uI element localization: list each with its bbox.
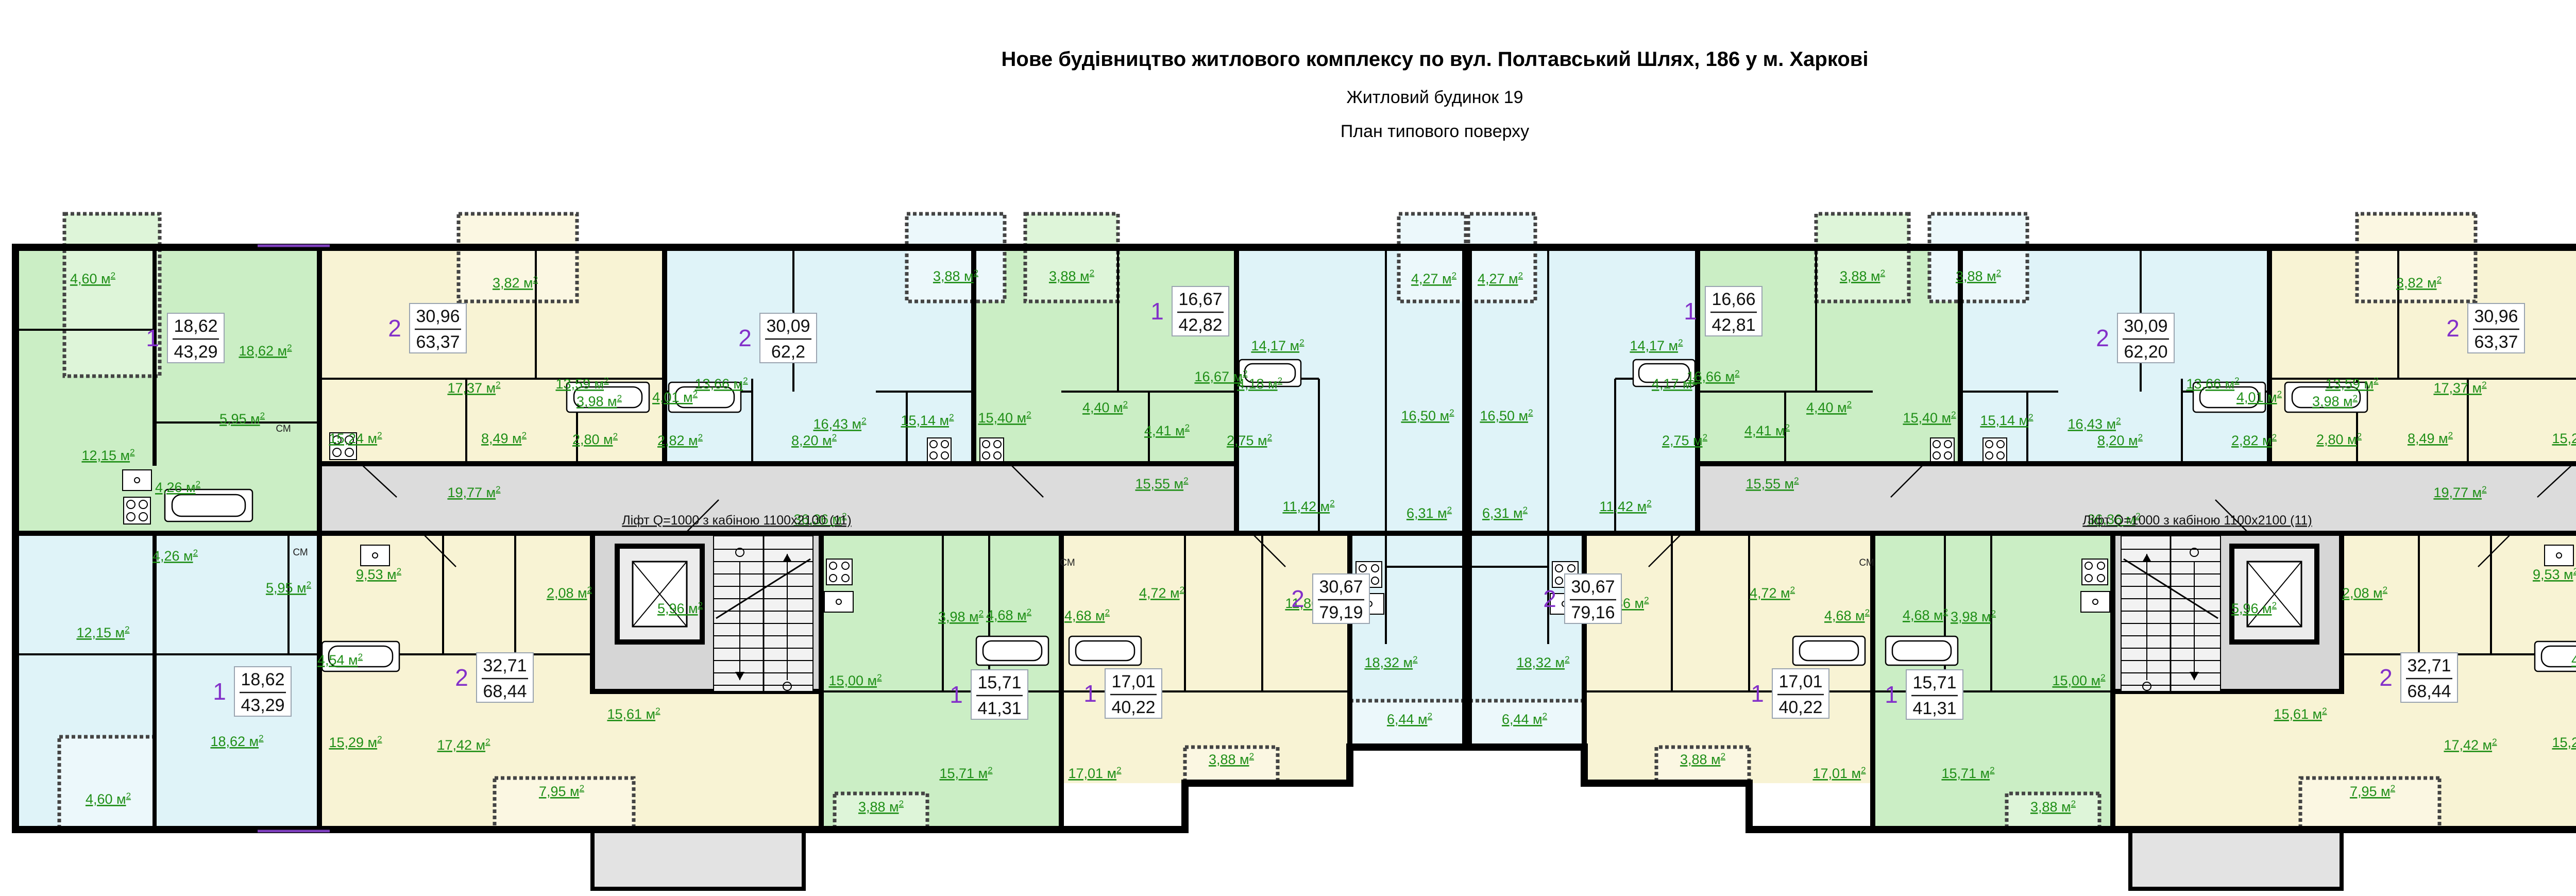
apartment-living-area: 32,71 xyxy=(2407,656,2451,675)
room-area-label: 15,40 м2 xyxy=(978,410,1031,426)
room-area-label: 19,77 м2 xyxy=(2433,484,2486,500)
apartment-living-area: 30,09 xyxy=(766,316,810,336)
apartment-number: 2 xyxy=(1543,585,1556,612)
apartment-total-area: 62,20 xyxy=(2124,342,2167,362)
apartment-number: 2 xyxy=(455,664,468,691)
room-area-label: 3,88 м2 xyxy=(933,268,978,284)
room-area-label: 4,41 м2 xyxy=(1144,422,1190,438)
apartment-total-area: 68,44 xyxy=(2407,682,2451,701)
room-area-label: 3,88 м2 xyxy=(858,799,904,815)
room-area-label: 3,88 м2 xyxy=(1049,268,1094,284)
closet-label: СМ xyxy=(1060,557,1075,568)
apartment-living-area: 30,67 xyxy=(1571,577,1615,597)
apartment-living-area: 30,96 xyxy=(2474,307,2518,326)
apartment-living-area: 32,71 xyxy=(483,656,527,675)
room-area-label: 4,72 м2 xyxy=(1139,585,1184,601)
room-area-label: 3,82 м2 xyxy=(493,275,538,291)
apartment-number: 2 xyxy=(1291,585,1304,612)
apartment-number: 1 xyxy=(1083,680,1097,707)
apartment-living-area: 18,62 xyxy=(241,670,284,689)
apartment-number: 1 xyxy=(213,678,226,705)
room-area-label: 5,96 м2 xyxy=(2231,600,2277,616)
room-area-label: 16,50 м2 xyxy=(1401,408,1454,424)
apartment-number: 2 xyxy=(388,315,401,342)
apartment-number: 1 xyxy=(146,325,159,351)
apartment-living-area: 16,67 xyxy=(1178,290,1222,309)
room-area-label: 2,08 м2 xyxy=(547,585,592,601)
room-area-label: 6,31 м2 xyxy=(1406,505,1452,521)
room-area-label: 7,95 м2 xyxy=(2350,783,2395,799)
room-area-label: 15,71 м2 xyxy=(1941,765,1994,781)
room-area-label: 15,00 м2 xyxy=(828,672,882,688)
room-area-label: 3,98 м2 xyxy=(577,393,622,409)
room-area-label: 2,80 м2 xyxy=(2316,431,2362,447)
apartment-living-area: 16,66 xyxy=(1711,290,1755,309)
room-area-label: 3,88 м2 xyxy=(1840,268,1885,284)
room-area-label: 4,68 м2 xyxy=(1064,607,1110,623)
apartment-total-area: 62,2 xyxy=(771,342,805,362)
apartment-total-area: 79,19 xyxy=(1319,603,1363,622)
room-area-label: 9,53 м2 xyxy=(2533,566,2576,582)
room-area-label: 17,37 м2 xyxy=(2433,380,2486,396)
apartment-living-area: 15,71 xyxy=(1912,673,1956,692)
room-area-label: 4,01 м2 xyxy=(2236,389,2282,405)
room-area-label: 3,88 м2 xyxy=(1956,268,2001,284)
room-area-label: 15,14 м2 xyxy=(1980,412,2033,428)
room-area-label: 12,15 м2 xyxy=(76,624,129,640)
apartment-total-area: 43,29 xyxy=(241,696,284,715)
room-area-label: 15,14 м2 xyxy=(901,412,954,428)
room-area-label: 2,75 м2 xyxy=(1227,432,1272,448)
room-area-label: 4,26 м2 xyxy=(152,548,198,564)
apartment-total-area: 40,22 xyxy=(1778,698,1822,717)
room-area-label: 4,54 м2 xyxy=(2571,652,2576,668)
room-area-label: 4,60 м2 xyxy=(70,271,115,286)
apartment-living-area: 17,01 xyxy=(1778,672,1822,691)
apartment-number: 1 xyxy=(1150,298,1164,325)
room-area-label: 4,41 м2 xyxy=(1744,422,1790,438)
room-area-label: 4,26 м2 xyxy=(155,479,200,495)
room-area-label: 15,29 м2 xyxy=(2552,734,2576,750)
room-area-label: 6,31 м2 xyxy=(1482,505,1528,521)
room-area-label: 15,61 м2 xyxy=(607,706,660,722)
room-area-label: 11,42 м2 xyxy=(1599,498,1651,514)
apartment-number: 1 xyxy=(950,681,963,708)
room-area-label: 15,61 м2 xyxy=(2274,706,2327,722)
apartment-number: 2 xyxy=(2096,325,2109,351)
apartment-total-area: 79,16 xyxy=(1571,603,1615,622)
room-area-label: 9,53 м2 xyxy=(356,566,401,582)
room-area-label: 4,60 м2 xyxy=(86,791,131,807)
apartment-number: 2 xyxy=(738,325,752,351)
apartment-number: 2 xyxy=(2446,315,2460,342)
room-area-label: 4,40 м2 xyxy=(1082,399,1128,415)
room-area-label: 4,18 м2 xyxy=(1237,376,1282,392)
closet-label: СМ xyxy=(276,424,291,434)
page-subtitle-building: Житловий будинок 19 xyxy=(1346,88,1523,107)
room-area-label: 11,42 м2 xyxy=(1282,498,1334,514)
room-area-label: 6,44 м2 xyxy=(1387,711,1432,727)
room-area-label: 2,08 м2 xyxy=(2342,585,2387,601)
room-area-label: 4,01 м2 xyxy=(652,389,698,405)
room-area-label: 4,72 м2 xyxy=(1750,585,1795,601)
apartment-total-area: 41,31 xyxy=(1912,699,1956,718)
room-area-label: 13,59 м2 xyxy=(2325,376,2378,392)
apartment-number: 2 xyxy=(2379,664,2393,691)
room-area-label: 15,40 м2 xyxy=(1903,410,1956,426)
room-area-label: 18,32 м2 xyxy=(1364,654,1417,670)
room-area-label: 17,42 м2 xyxy=(2444,737,2497,753)
room-area-label: 5,95 м2 xyxy=(266,580,311,596)
apartment-total-area: 42,81 xyxy=(1711,315,1755,335)
room-area-label: 18,62 м2 xyxy=(239,343,292,359)
room-area-label: 15,71 м2 xyxy=(939,765,992,781)
room-area-label: 4,17 м2 xyxy=(1652,376,1697,392)
apartment-total-area: 43,29 xyxy=(174,342,217,362)
room-area-label: 8,49 м2 xyxy=(2408,430,2453,446)
room-area-label: 4,68 м2 xyxy=(1824,607,1870,623)
room-area-label: 2,82 м2 xyxy=(657,432,703,448)
floor-plan-svg: Нове будівництво житлового комплексу по … xyxy=(0,0,2576,896)
room-area-label: 15,55 м2 xyxy=(1135,476,1188,492)
room-area-label: 3,88 м2 xyxy=(1680,751,1725,767)
room-area-label: 17,42 м2 xyxy=(437,737,490,753)
building-right-half xyxy=(1468,214,2576,889)
room-area-label: 16,43 м2 xyxy=(813,416,866,432)
room-area-label: 8,20 м2 xyxy=(791,432,837,448)
room-area-label: 15,24 м2 xyxy=(2552,430,2576,446)
apartment-living-area: 30,96 xyxy=(416,307,460,326)
room-area-label: 4,27 м2 xyxy=(1478,271,1523,286)
room-area-label: 17,01 м2 xyxy=(1068,765,1121,781)
apartment-living-area: 18,62 xyxy=(174,316,217,336)
apartment-total-area: 41,31 xyxy=(977,699,1021,718)
room-area-label: 3,82 м2 xyxy=(2396,275,2442,291)
apartment-total-area: 42,82 xyxy=(1178,315,1222,335)
apartment-total-area: 63,37 xyxy=(2474,332,2518,352)
closet-label: СМ xyxy=(293,547,308,558)
room-area-label: 2,80 м2 xyxy=(572,431,618,447)
room-area-label: 4,68 м2 xyxy=(986,607,1031,623)
room-area-label: 4,68 м2 xyxy=(1903,607,1948,623)
room-area-label: 3,98 м2 xyxy=(2312,393,2358,409)
apartment-living-area: 30,67 xyxy=(1319,577,1363,597)
room-area-label: 13,66 м2 xyxy=(694,376,748,392)
closet-label: СМ xyxy=(1859,557,1874,568)
room-area-label: 3,98 м2 xyxy=(1951,608,1996,624)
room-area-label: 16,43 м2 xyxy=(2067,416,2121,432)
apartment-living-area: 15,71 xyxy=(977,673,1021,692)
room-area-label: 17,37 м2 xyxy=(447,380,500,396)
room-area-label: 7,95 м2 xyxy=(539,783,584,799)
apartment-number: 1 xyxy=(1684,298,1697,325)
room-area-label: 15,00 м2 xyxy=(2052,672,2105,688)
lift-label: Ліфт Q=1000 з кабіною 1100х2100 (11) xyxy=(2082,513,2312,528)
room-area-label: 5,96 м2 xyxy=(657,600,703,616)
room-area-label: 3,98 м2 xyxy=(938,608,984,624)
room-area-label: 4,54 м2 xyxy=(317,652,363,668)
room-area-label: 17,01 м2 xyxy=(1812,765,1866,781)
page-title: Нове будівництво житлового комплексу по … xyxy=(1002,48,1869,71)
room-area-label: 14,17 м2 xyxy=(1251,337,1304,353)
page-subtitle-plan: План типового поверху xyxy=(1341,122,1529,141)
lift-label: Ліфт Q=1000 з кабіною 1100х2100 (11) xyxy=(622,513,851,528)
room-area-label: 4,40 м2 xyxy=(1806,399,1852,415)
apartment-total-area: 63,37 xyxy=(416,332,460,352)
room-area-label: 2,75 м2 xyxy=(1662,432,1707,448)
apartment-living-area: 17,01 xyxy=(1111,672,1155,691)
apartment-total-area: 68,44 xyxy=(483,682,527,701)
room-area-label: 6,44 м2 xyxy=(1502,711,1547,727)
room-area-label: 8,20 м2 xyxy=(2097,432,2143,448)
room-area-label: 18,62 м2 xyxy=(210,733,263,749)
room-area-label: 14,17 м2 xyxy=(1630,337,1683,353)
room-area-label: 3,88 м2 xyxy=(2030,799,2076,815)
room-area-label: 4,27 м2 xyxy=(1411,271,1456,286)
apartment-number: 1 xyxy=(1751,680,1764,707)
room-area-label: 13,59 м2 xyxy=(555,376,608,392)
room-area-label: 5,95 м2 xyxy=(219,411,265,427)
room-area-label: 18,32 м2 xyxy=(1516,654,1569,670)
room-area-label: 16,50 м2 xyxy=(1480,408,1533,424)
room-area-label: 15,24 м2 xyxy=(329,430,382,446)
room-area-label: 8,49 м2 xyxy=(481,430,527,446)
building-left-half xyxy=(15,214,1466,889)
room-area-label: 12,15 м2 xyxy=(81,447,134,463)
apartment-number: 1 xyxy=(1885,681,1898,708)
room-area-label: 15,55 м2 xyxy=(1745,476,1799,492)
room-area-label: 15,29 м2 xyxy=(329,734,382,750)
room-area-label: 3,88 м2 xyxy=(1209,751,1254,767)
room-area-label: 13,66 м2 xyxy=(2186,376,2239,392)
apartment-total-area: 40,22 xyxy=(1111,698,1155,717)
room-area-label: 2,82 м2 xyxy=(2231,432,2277,448)
apartment-living-area: 30,09 xyxy=(2124,316,2167,336)
room-area-label: 19,77 м2 xyxy=(447,484,500,500)
